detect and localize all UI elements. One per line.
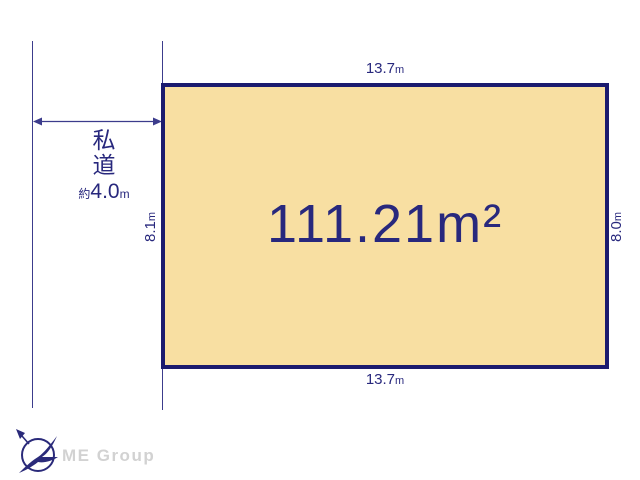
dimension-top-value: 13.7 xyxy=(366,60,395,77)
brand-text: ME Group xyxy=(62,446,155,466)
compass-north-bird-icon xyxy=(12,426,59,476)
dimension-right-unit: m xyxy=(612,212,624,221)
dimension-label-top: 13.7m xyxy=(345,61,425,78)
land-plot-diagram: 私 道 約4.0m 111.21m² 13.7m 13.7m 8.1m 8.0m… xyxy=(0,0,640,480)
road-label-char1: 私 xyxy=(65,128,143,153)
road-width-label: 約4.0m xyxy=(65,181,143,205)
dimension-top-unit: m xyxy=(395,64,404,76)
road-label: 私 道 約4.0m xyxy=(65,128,143,205)
dimension-label-bottom: 13.7m xyxy=(345,372,425,389)
dimension-bottom-unit: m xyxy=(395,375,404,387)
dimension-bottom-value: 13.7 xyxy=(366,371,395,388)
dimension-left-value: 8.1 xyxy=(142,221,159,242)
area-label: 111.21m² xyxy=(267,193,503,255)
dimension-label-right: 8.0m xyxy=(609,204,625,250)
road-label-char2: 道 xyxy=(65,153,143,178)
road-width-prefix: 約 xyxy=(78,187,90,201)
dimension-label-left: 8.1m xyxy=(143,204,159,250)
road-width-value: 4.0 xyxy=(90,180,119,203)
dimension-right-value: 8.0 xyxy=(608,221,625,242)
dimension-left-unit: m xyxy=(146,212,158,221)
road-width-unit: m xyxy=(120,187,130,201)
guide-line-left xyxy=(32,41,33,408)
plot-boundary: 111.21m² xyxy=(161,83,609,369)
